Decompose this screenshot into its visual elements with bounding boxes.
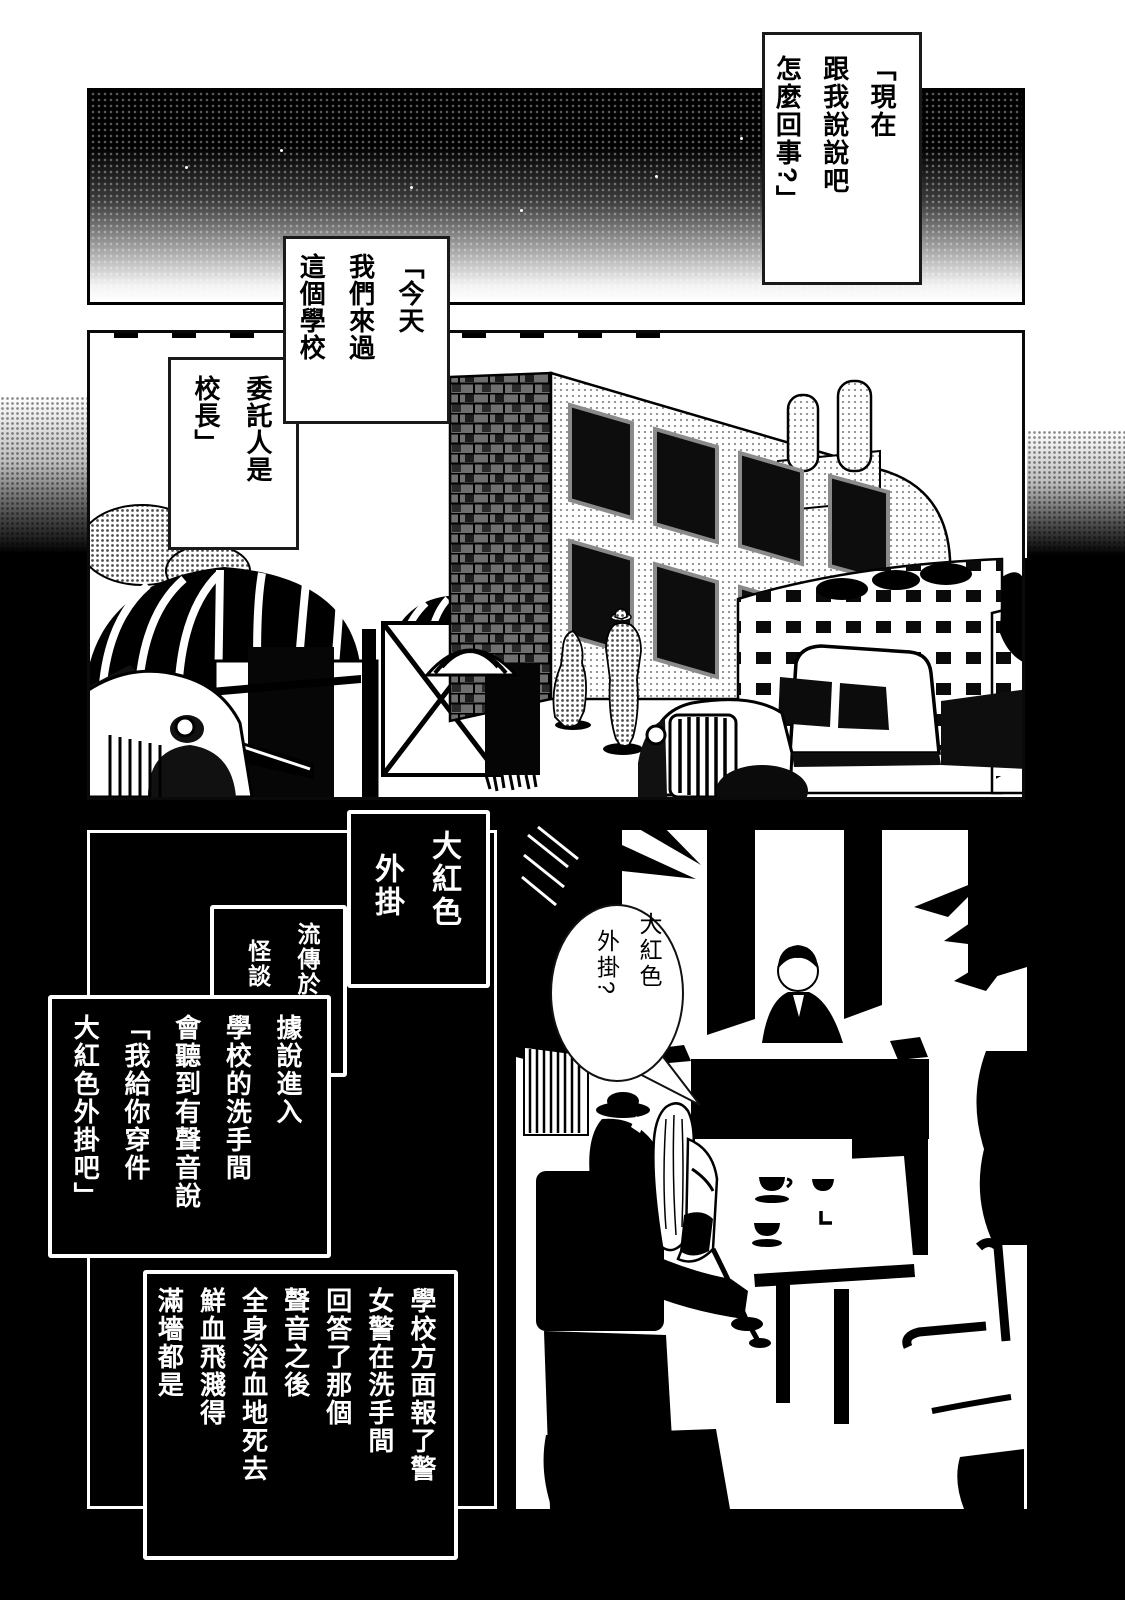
bubble-line: 這個學校 — [286, 253, 335, 421]
narration-line: 「我給你穿件 — [110, 1014, 161, 1254]
star — [185, 166, 188, 169]
narration-line: 聲音之後 — [275, 1287, 317, 1556]
coffee-table — [744, 1156, 915, 1424]
narration-line: 滿墻都是 — [148, 1287, 190, 1556]
svg-text:L: L — [540, 920, 555, 947]
bubble-line: 外掛? — [585, 912, 628, 1087]
narration-line: 回答了那個 — [317, 1287, 359, 1556]
narration-line: 全身浴血地死去 — [232, 1287, 274, 1556]
narration-box-incident: 學校方面報了警 女警在洗手間 回答了那個 聲音之後 全身浴血地死去 鮮血飛濺得 … — [143, 1270, 458, 1560]
narration-line: 學校的洗手間 — [212, 1014, 263, 1254]
bubble-line: 委託人是 — [232, 375, 284, 547]
bubble-line: 「現在 — [858, 55, 905, 282]
star — [740, 137, 743, 140]
narration-line: 學校方面報了警 — [401, 1287, 443, 1556]
narration-line: 女警在洗手間 — [359, 1287, 401, 1556]
speech-bubble-client: 委託人是 校長」 — [168, 357, 299, 550]
manga-page: 「現在 跟我說說吧 怎麼回事?」 委託人是 校長」 「今天 我們來過 這個學校 … — [0, 0, 1125, 1600]
right-armchair — [907, 1243, 1024, 1510]
speech-bubble-reply: 大紅色 外掛? — [558, 912, 676, 1087]
left-margin-gradient — [0, 396, 87, 562]
title-box: 大紅色 外掛 — [347, 810, 490, 988]
star — [410, 186, 413, 189]
grass-fringe — [486, 775, 536, 791]
speech-bubble-opening: 「現在 跟我說說吧 怎麼回事?」 — [762, 32, 922, 285]
narration-line: 據說進入 — [262, 1014, 313, 1254]
bubble-line: 校長」 — [180, 375, 232, 547]
right-margin-gradient — [1027, 430, 1125, 562]
narration-line: 大紅色外掛吧」 — [60, 1014, 111, 1254]
title-line: 外掛 — [358, 830, 415, 984]
narration-line: 鮮血飛濺得 — [190, 1287, 232, 1556]
bubble-line: 大紅色 — [627, 912, 670, 1087]
narration-line: 會聽到有聲音說 — [161, 1014, 212, 1254]
bubble-line: 「今天 — [385, 253, 434, 421]
chair-base — [544, 1429, 730, 1509]
bubble-line: 我們來過 — [335, 253, 384, 421]
title-line: 大紅色 — [415, 830, 472, 984]
speech-bubble-today: 「今天 我們來過 這個學校 — [283, 236, 450, 424]
bubble-line: 跟我說說吧 — [810, 55, 857, 282]
narration-box-legend-detail: 據說進入 學校的洗手間 會聽到有聲音說 「我給你穿件 大紅色外掛吧」 — [48, 995, 331, 1258]
principal-figure — [762, 945, 843, 1043]
star — [655, 175, 658, 178]
figure-man — [606, 609, 641, 746]
star — [520, 209, 523, 212]
svg-text:L: L — [532, 971, 544, 992]
star — [280, 149, 283, 152]
bubble-line: 怎麼回事?」 — [763, 55, 810, 282]
barn-dark-doorway — [248, 647, 334, 797]
